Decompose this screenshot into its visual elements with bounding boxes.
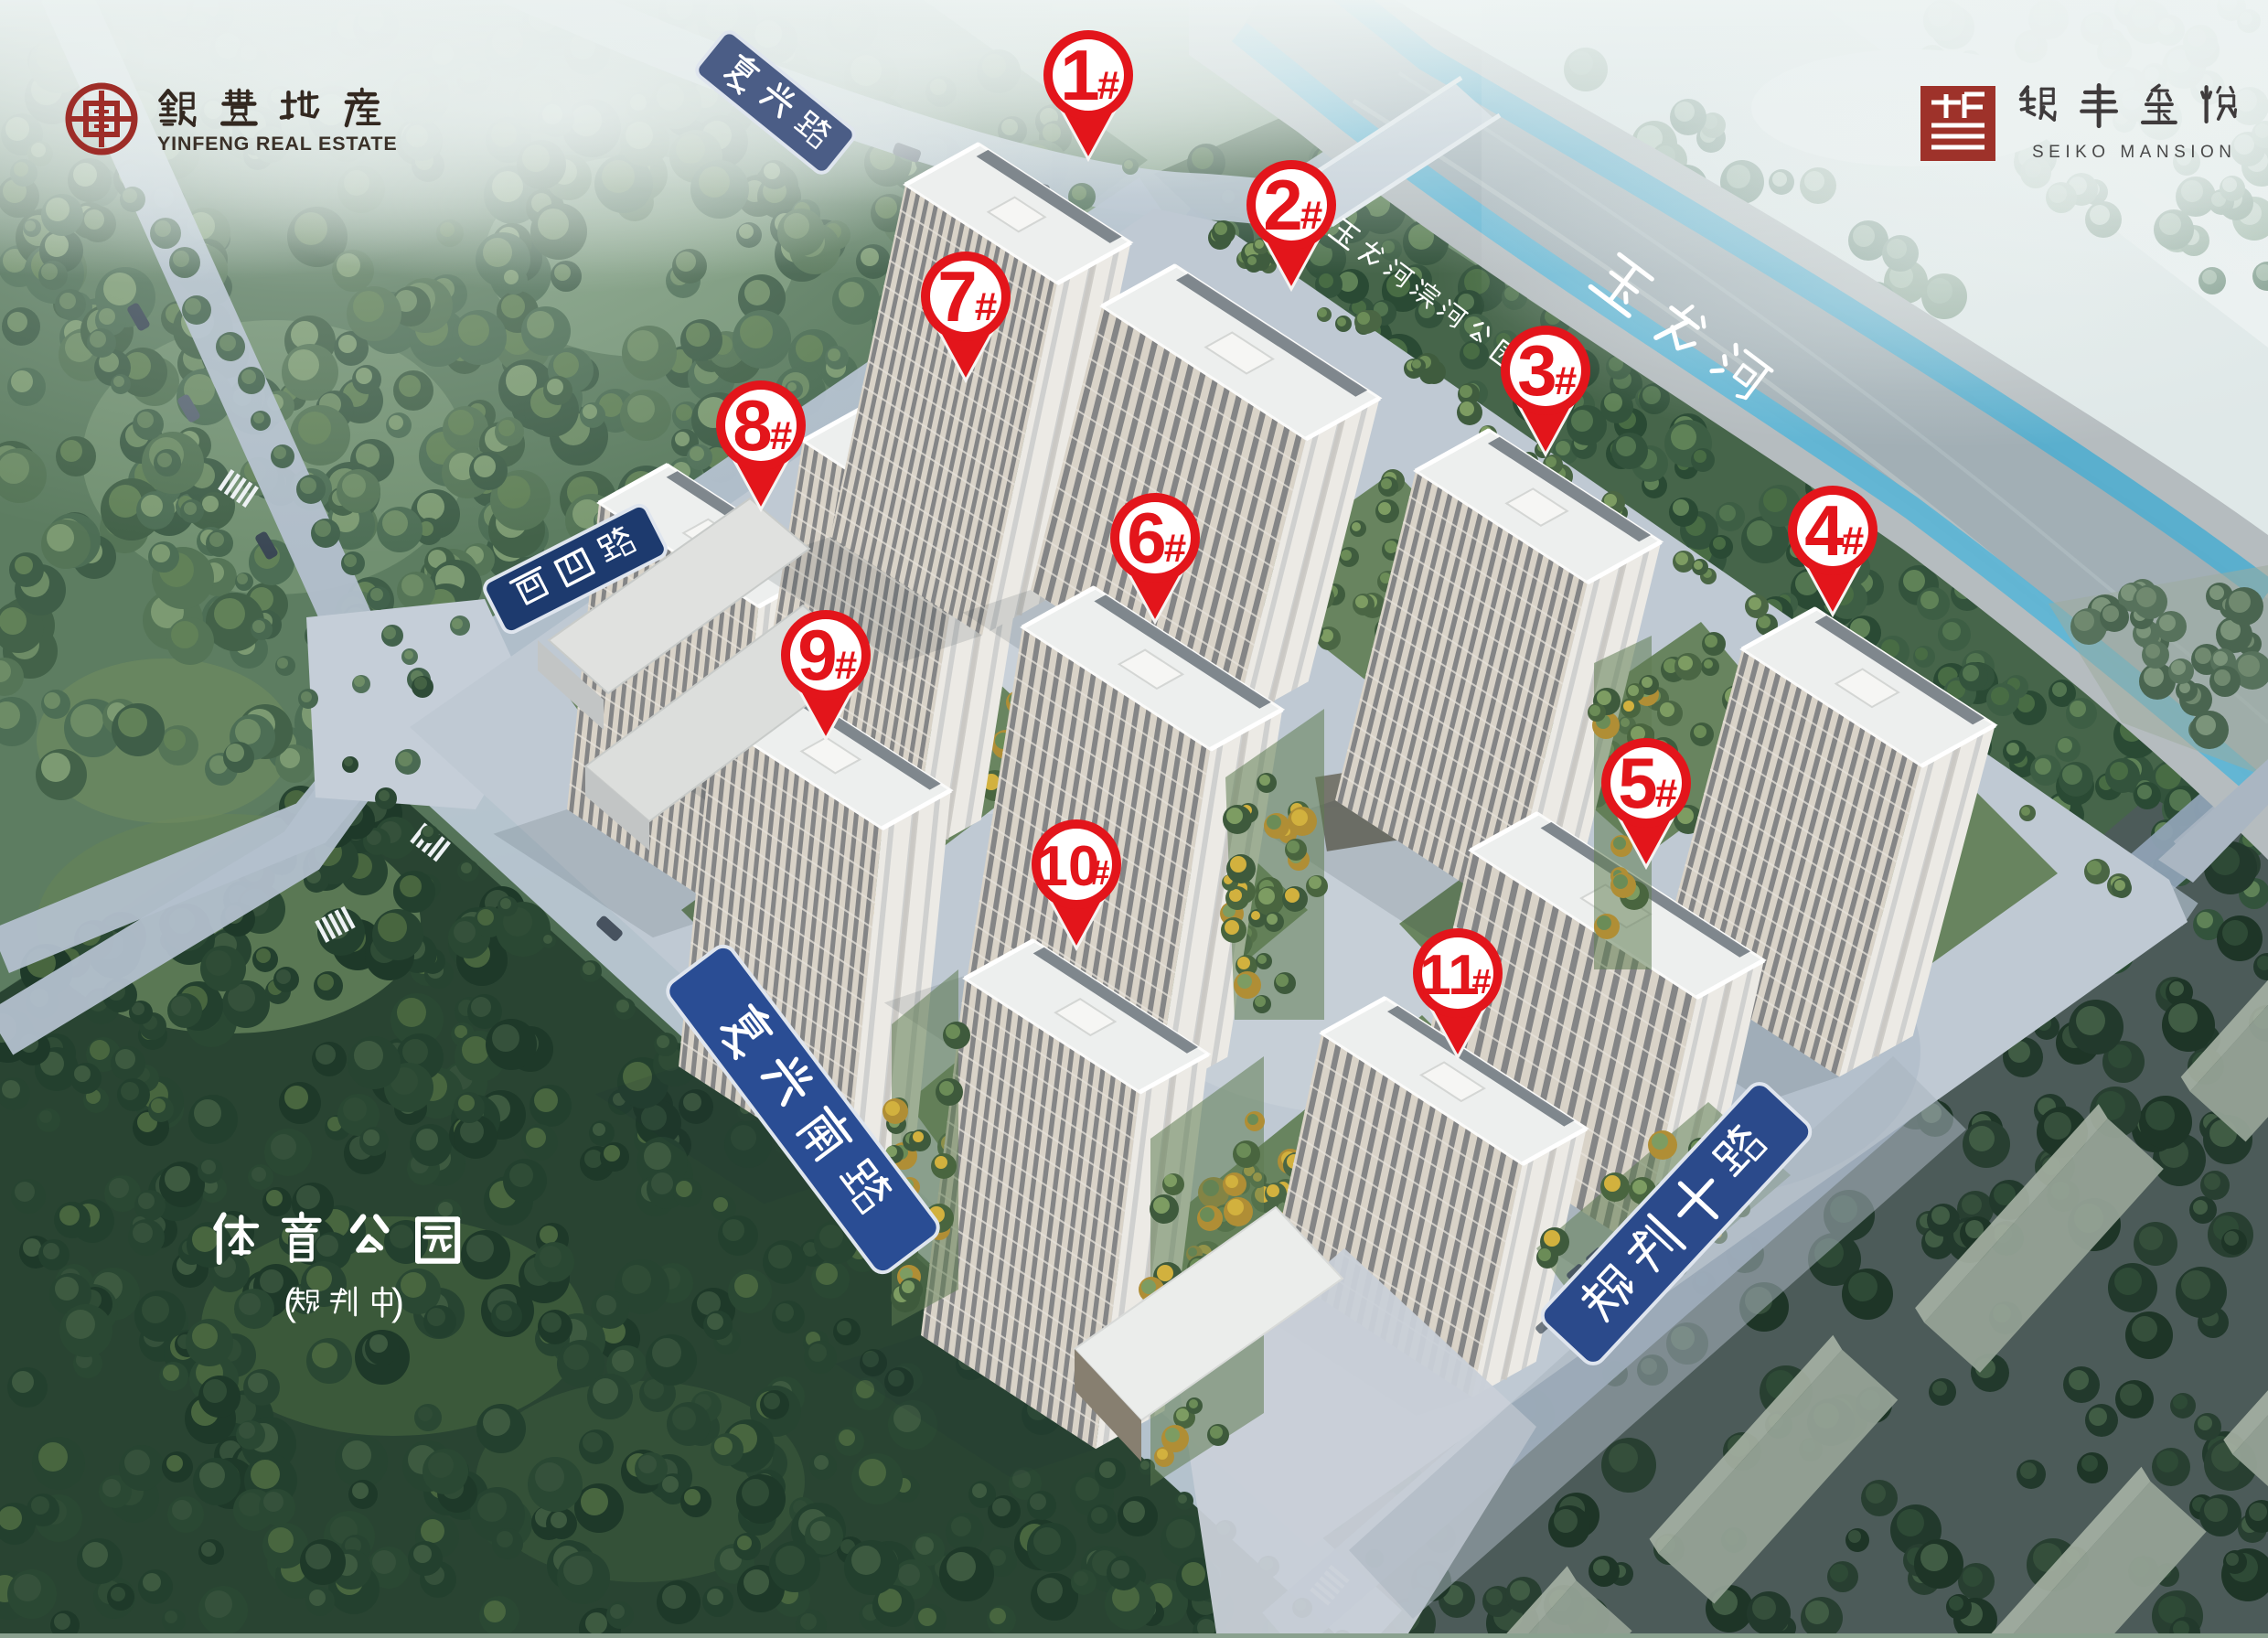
svg-text:SEIKO MANSION: SEIKO MANSION <box>2032 143 2237 162</box>
svg-text:YINFENG REAL ESTATE: YINFENG REAL ESTATE <box>157 133 397 155</box>
svg-text:#: # <box>835 643 857 688</box>
svg-text:#: # <box>1097 63 1119 108</box>
svg-text:2: 2 <box>1263 165 1302 245</box>
svg-text:1: 1 <box>1060 35 1099 115</box>
svg-text:#: # <box>1164 526 1186 571</box>
svg-text:6: 6 <box>1127 498 1166 578</box>
svg-text:8: 8 <box>733 385 772 466</box>
svg-text:4: 4 <box>1804 490 1844 571</box>
svg-text:#: # <box>1090 854 1109 893</box>
svg-text:#: # <box>1655 771 1677 816</box>
svg-text:7: 7 <box>937 256 977 337</box>
svg-text:5: 5 <box>1618 743 1657 823</box>
svg-text:#: # <box>1300 193 1322 238</box>
svg-text:(: ( <box>283 1280 296 1323</box>
svg-text:#: # <box>1555 359 1577 403</box>
svg-text:11: 11 <box>1419 944 1480 1007</box>
svg-text:#: # <box>1471 963 1491 1001</box>
svg-text:): ) <box>391 1280 404 1323</box>
svg-text:9: 9 <box>797 615 837 695</box>
svg-text:#: # <box>770 413 792 458</box>
svg-text:3: 3 <box>1517 330 1557 411</box>
svg-text:#: # <box>1842 519 1864 563</box>
svg-text:#: # <box>975 284 997 329</box>
